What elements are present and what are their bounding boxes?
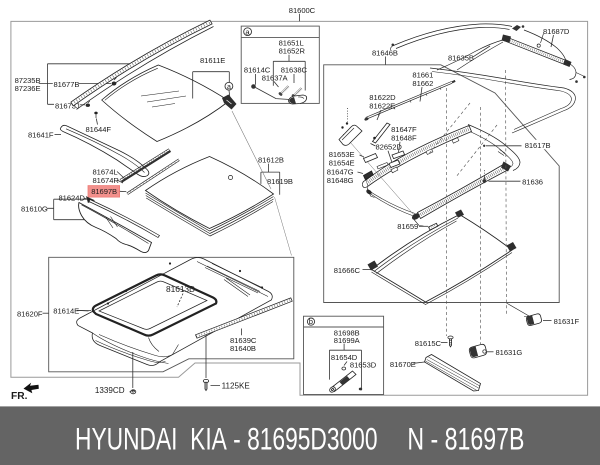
svg-text:81648F: 81648F — [391, 134, 417, 143]
svg-text:N - 81697B: N - 81697B — [407, 421, 524, 457]
svg-text:81620F: 81620F — [17, 309, 43, 318]
svg-text:81600C: 81600C — [289, 6, 316, 15]
svg-text:81662: 81662 — [412, 79, 433, 88]
svg-text:81659: 81659 — [397, 222, 418, 231]
svg-text:FR.: FR. — [11, 391, 28, 402]
svg-text:81648G: 81648G — [327, 176, 354, 185]
svg-text:81699A: 81699A — [334, 336, 361, 345]
svg-text:81631F: 81631F — [554, 317, 580, 326]
svg-text:81611E: 81611E — [200, 56, 225, 65]
svg-text:81638C: 81638C — [281, 66, 308, 75]
svg-text:81610G: 81610G — [21, 205, 48, 214]
svg-text:81615C: 81615C — [415, 339, 442, 348]
svg-text:81631G: 81631G — [496, 348, 523, 357]
svg-text:81687D: 81687D — [543, 27, 570, 36]
svg-text:81641F: 81641F — [28, 130, 54, 139]
svg-text:a: a — [227, 84, 231, 91]
svg-text:81677B: 81677B — [54, 80, 80, 89]
svg-text:81652R: 81652R — [279, 47, 306, 56]
svg-text:81612B: 81612B — [258, 156, 284, 165]
svg-text:81697B: 81697B — [91, 187, 117, 196]
svg-text:81674R: 81674R — [93, 176, 120, 185]
svg-text:81624D: 81624D — [59, 194, 86, 203]
svg-text:87236E: 87236E — [15, 84, 41, 93]
svg-text:1125KE: 1125KE — [222, 382, 251, 391]
svg-text:1339CD: 1339CD — [95, 386, 125, 395]
svg-text:b: b — [309, 317, 313, 326]
svg-text:81644F: 81644F — [86, 125, 112, 134]
svg-text:HYUNDAI KIA - 81695D3000: HYUNDAI KIA - 81695D3000 — [75, 421, 378, 457]
svg-text:81646B: 81646B — [372, 48, 398, 57]
svg-text:81647G: 81647G — [327, 167, 354, 176]
svg-text:81666C: 81666C — [334, 266, 361, 275]
svg-text:81637A: 81637A — [262, 74, 289, 83]
svg-text:81640B: 81640B — [230, 344, 256, 353]
svg-text:81614E: 81614E — [53, 307, 79, 316]
svg-text:81635B: 81635B — [448, 53, 474, 62]
svg-text:81670E: 81670E — [390, 360, 416, 369]
svg-text:81617B: 81617B — [525, 141, 551, 150]
svg-text:82652D: 82652D — [376, 143, 403, 152]
svg-text:81636: 81636 — [522, 178, 543, 187]
svg-text:81654E: 81654E — [329, 159, 355, 168]
svg-text:81653D: 81653D — [350, 361, 377, 370]
